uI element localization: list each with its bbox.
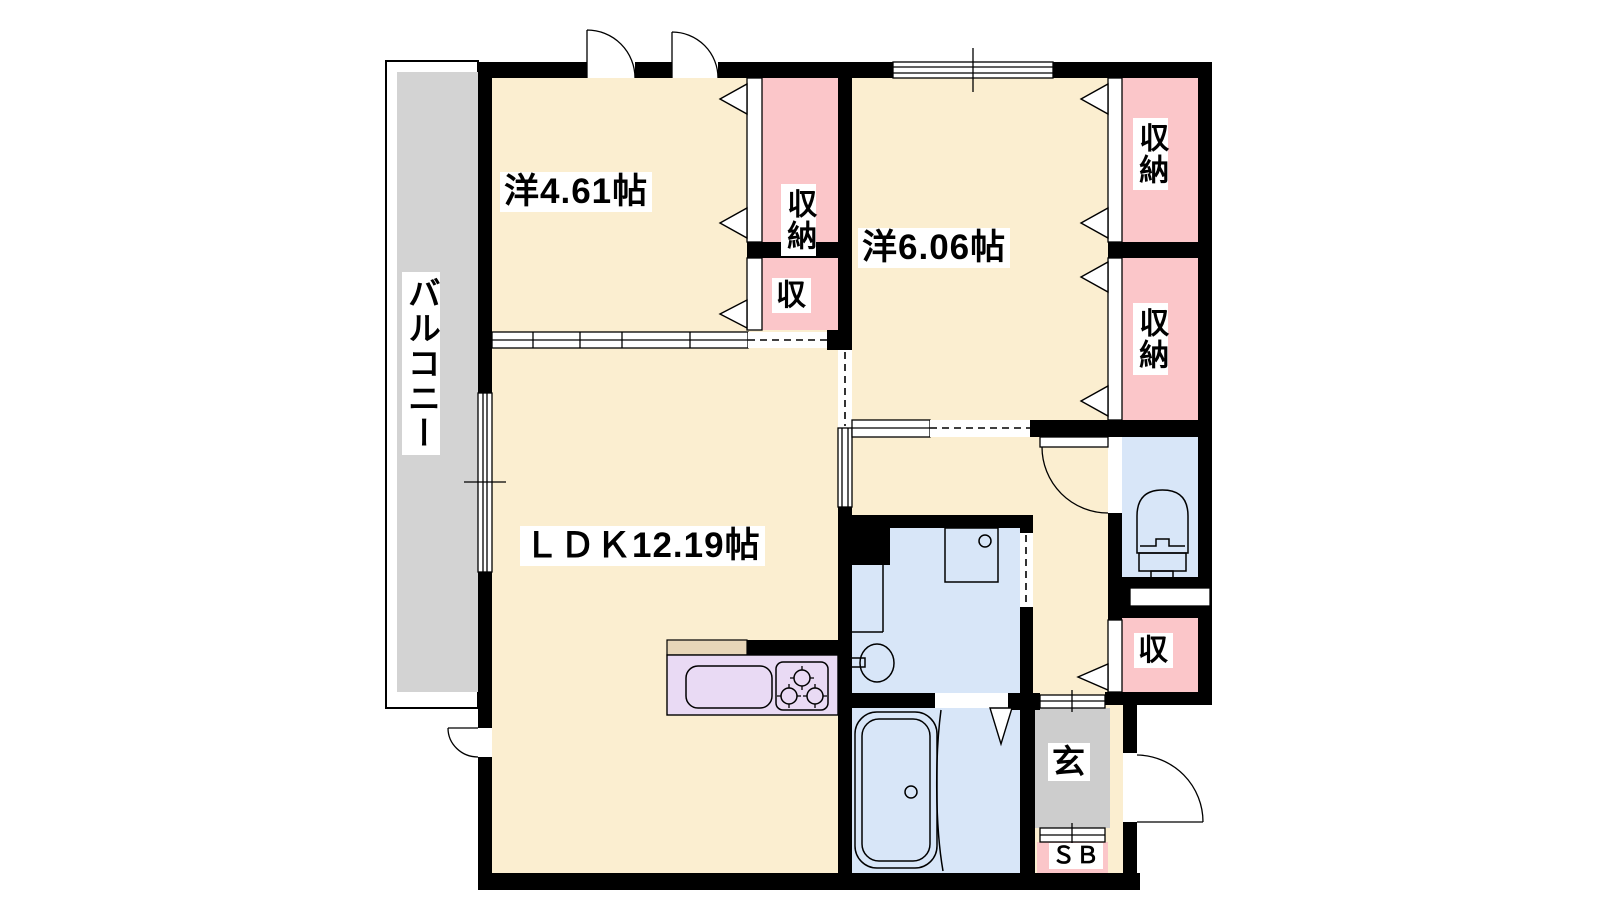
entrance-hall xyxy=(1035,708,1110,828)
floor-plan-canvas: 洋4.61帖 洋6.06帖 ＬＤＫ12.19帖 バルコニー 収納 収 収納 収納… xyxy=(0,0,1600,900)
swing-door-top-right xyxy=(672,32,718,78)
sliding-door-west-ldk xyxy=(492,332,827,348)
swing-door-top-left xyxy=(587,30,635,78)
floor-plan-drawing xyxy=(0,0,1600,900)
entrance-door xyxy=(1123,753,1203,822)
kitchen-counter xyxy=(667,640,838,715)
opening-ldk-corridor xyxy=(838,428,852,507)
closet-west-upper xyxy=(762,78,838,242)
bathroom xyxy=(852,708,1020,873)
closet-east-lower xyxy=(1122,258,1198,420)
closet-hall xyxy=(1122,618,1198,692)
washroom-sliding-door xyxy=(1020,533,1033,607)
sliding-door-ldk-east xyxy=(838,350,852,428)
sliding-door-east-bottom xyxy=(852,420,1030,437)
closet-east-upper xyxy=(1122,78,1198,242)
toilet-window xyxy=(1130,588,1210,606)
closet-west-lower xyxy=(762,258,838,330)
balcony-area xyxy=(386,61,478,708)
service-door xyxy=(448,728,492,757)
